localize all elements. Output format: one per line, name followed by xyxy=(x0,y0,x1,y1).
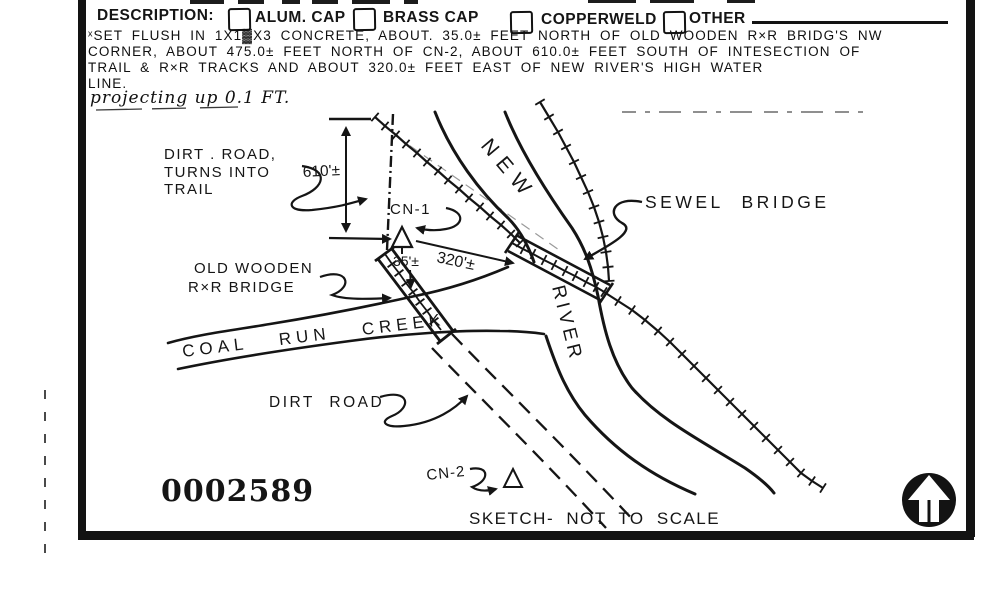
cn1-label: CN-1 xyxy=(390,201,431,218)
dirt-road-dashed-ne xyxy=(452,334,635,522)
old-bridge-label-2: R×R BRIDGE xyxy=(188,279,295,296)
faint-parallel-line xyxy=(396,136,562,252)
dirt-road-trail-label-2: TURNS INTO xyxy=(164,164,270,181)
north-arrow-icon xyxy=(902,473,956,527)
dim-610-bottom-line xyxy=(329,238,390,239)
sewel-bridge-leader-arrow xyxy=(585,201,642,259)
station-cn2-marker xyxy=(504,469,522,487)
dim-610-label: 610'± xyxy=(302,162,341,181)
dirt-road-trail-label-1: DIRT . ROAD, xyxy=(164,146,276,163)
sketch-footer-note: SKETCH- NOT TO SCALE xyxy=(469,509,720,528)
cn2-label: CN-2 xyxy=(426,463,467,484)
station-cn1-marker xyxy=(392,227,412,254)
river-east-bank xyxy=(505,112,774,493)
old-bridge-label-1: OLD WOODEN xyxy=(194,260,313,277)
old-bridge-leader-arrow xyxy=(320,274,390,299)
dirt-road-dashed-sw xyxy=(432,348,606,528)
dirt-road-trail-label-3: TRAIL xyxy=(164,181,214,198)
railroad-track-southeast xyxy=(604,292,823,488)
sewel-bridge-label: SEWEL BRIDGE xyxy=(645,192,830,212)
note-underline xyxy=(96,107,238,110)
dim-35-label: 35'± xyxy=(393,253,419,269)
trail-line xyxy=(387,114,393,250)
dirt-road-leader-arrow xyxy=(380,395,467,427)
serial-number-stamp: 0002589 xyxy=(161,474,314,509)
sketch-map: DIRT . ROAD, TURNS INTO TRAIL 610'± CN-1… xyxy=(0,0,999,606)
dirt-road-label: DIRT ROAD xyxy=(269,394,384,411)
dim-35-arrow xyxy=(410,270,411,287)
cn2-leader-arrow xyxy=(470,468,496,490)
scanned-survey-form: DESCRIPTION: ALUM. CAP BRASS CAP COPPERW… xyxy=(0,0,999,606)
